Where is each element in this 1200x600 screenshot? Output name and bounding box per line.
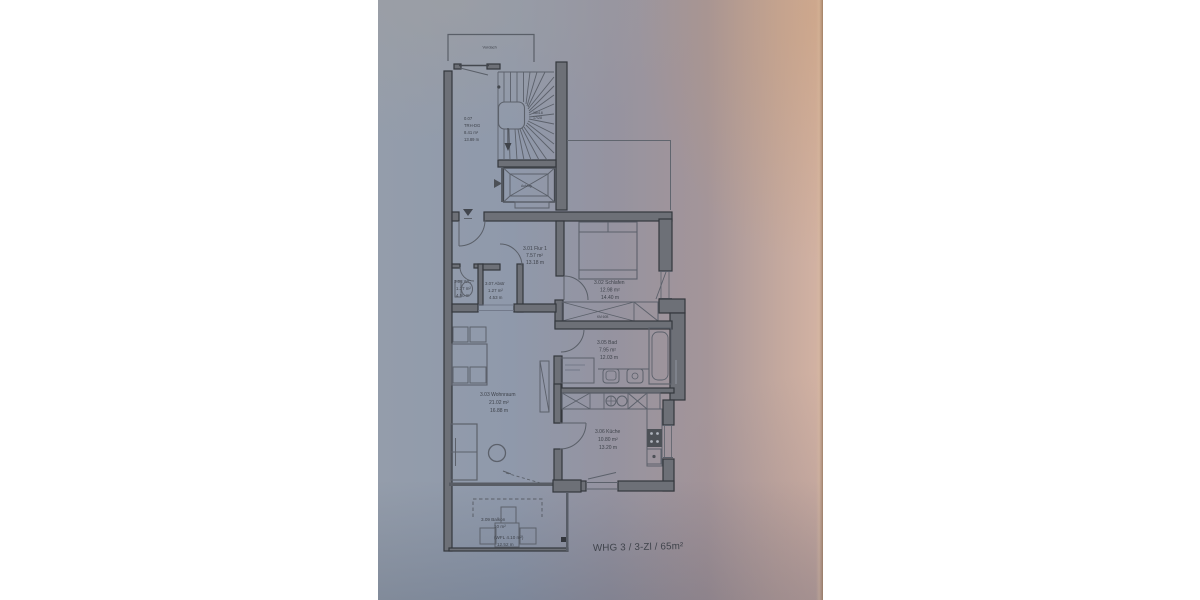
svg-text:12.98 m²: 12.98 m² bbox=[600, 288, 620, 294]
svg-text:13.18 m: 13.18 m bbox=[526, 260, 544, 266]
svg-text:10.80 m²: 10.80 m² bbox=[598, 437, 618, 443]
svg-text:1.27 m²: 1.27 m² bbox=[488, 288, 503, 293]
svg-text:1.37 m²: 1.37 m² bbox=[456, 286, 471, 291]
svg-text:4.53 m: 4.53 m bbox=[489, 295, 503, 300]
svg-text:21.02 m²: 21.02 m² bbox=[489, 400, 509, 406]
svg-text:10 m²: 10 m² bbox=[494, 524, 506, 529]
svg-text:7.57 m²: 7.57 m² bbox=[526, 253, 543, 259]
svg-text:3.07 Abstr: 3.07 Abstr bbox=[485, 281, 505, 286]
svg-text:8.41 m²: 8.41 m² bbox=[464, 130, 479, 135]
svg-text:12.52 m: 12.52 m bbox=[497, 542, 514, 547]
svg-text:13.89 m: 13.89 m bbox=[464, 137, 480, 142]
svg-text:3.09 Balkon: 3.09 Balkon bbox=[481, 517, 506, 522]
svg-text:WHG 3 / 3-Zl / 65m²: WHG 3 / 3-Zl / 65m² bbox=[593, 541, 684, 554]
svg-text:3.03 Wohnraum: 3.03 Wohnraum bbox=[480, 392, 515, 398]
svg-text:3.06 Küche: 3.06 Küche bbox=[595, 429, 621, 435]
svg-text:0.07: 0.07 bbox=[464, 116, 473, 121]
svg-text:14.40 m: 14.40 m bbox=[601, 295, 619, 301]
svg-text:7.95 m²: 7.95 m² bbox=[599, 348, 616, 354]
svg-text:3.05 Bad: 3.05 Bad bbox=[597, 340, 617, 346]
svg-text:3.01 Flur 1: 3.01 Flur 1 bbox=[523, 246, 547, 252]
svg-text:TRH-DG: TRH-DG bbox=[464, 123, 480, 128]
svg-text:3.02 Schlafen: 3.02 Schlafen bbox=[594, 280, 625, 286]
svg-text:18x18: 18x18 bbox=[533, 111, 543, 115]
svg-text:13.20 m: 13.20 m bbox=[599, 445, 617, 451]
svg-text:17/28: 17/28 bbox=[533, 116, 542, 120]
svg-text:(WFL 4.10 m²): (WFL 4.10 m²) bbox=[494, 535, 524, 540]
svg-text:Vordach: Vordach bbox=[483, 45, 497, 50]
svg-text:12.03 m: 12.03 m bbox=[600, 355, 618, 361]
svg-text:16.88 m: 16.88 m bbox=[490, 408, 508, 414]
svg-text:Aufzug: Aufzug bbox=[521, 184, 532, 188]
svg-text:KM 60B: KM 60B bbox=[597, 315, 608, 319]
